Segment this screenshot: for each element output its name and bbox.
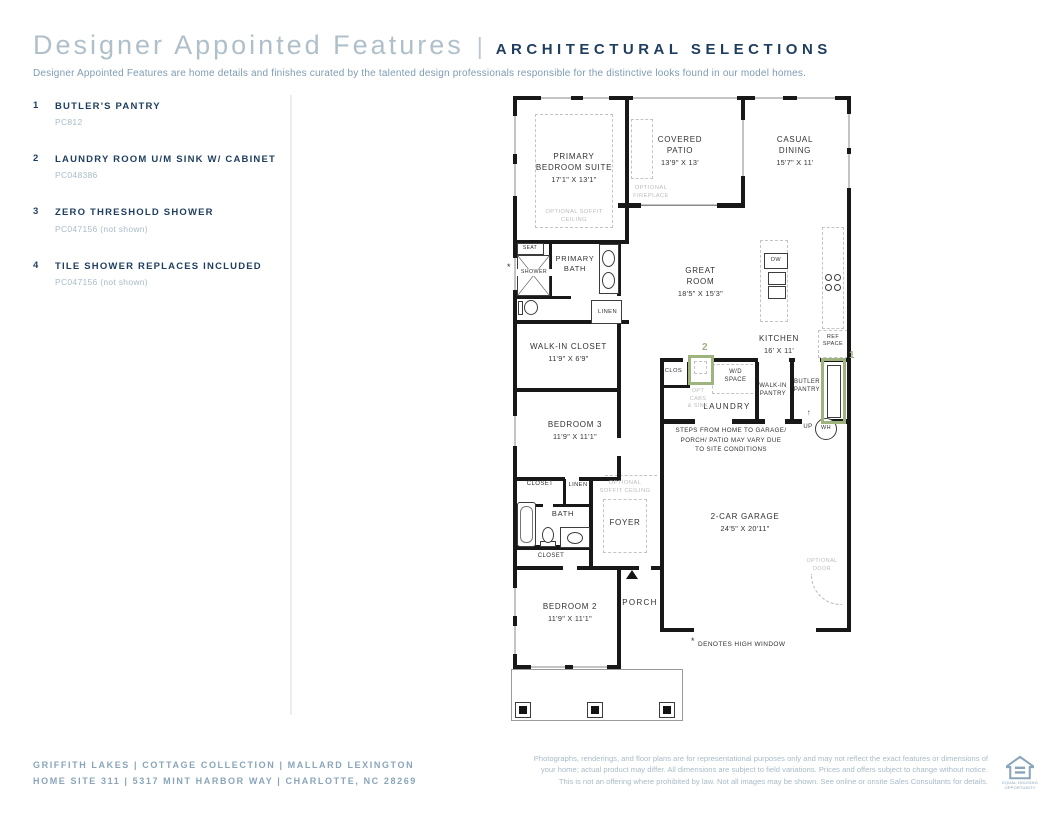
- linen-label: LINEN: [565, 482, 591, 490]
- window-marker: [633, 96, 737, 100]
- soffit-dashed-line: [605, 475, 657, 476]
- wall-segment: [660, 358, 664, 570]
- closet-label: CLOSET: [527, 553, 575, 561]
- wall-segment: [617, 456, 621, 479]
- equal-housing-house-icon: [1005, 755, 1035, 781]
- wall-segment: [577, 566, 621, 570]
- wall-segment: [660, 419, 695, 424]
- wall-segment: [553, 504, 591, 507]
- room-label-great-room: GREAT ROOM 18'5" X 15'3": [663, 266, 738, 298]
- room-label-walk-in-closet: WALK-IN CLOSET 11'9" X 6'9": [521, 342, 616, 363]
- room-label-butler-pantry: BUTLER PANTRY: [790, 379, 824, 395]
- optional-door-label: OPTIONAL DOOR: [799, 558, 845, 573]
- window-marker: [847, 114, 851, 148]
- wall-segment: [660, 628, 694, 632]
- feature-number: 3: [33, 205, 55, 233]
- seat-label: SEAT: [517, 245, 543, 252]
- kitchen-sink-basin: [768, 272, 786, 285]
- clos-label: CLOS: [661, 368, 686, 376]
- porch-post-core: [519, 706, 527, 714]
- feature-title: BUTLER'S PANTRY: [55, 99, 161, 114]
- porch-post-core: [591, 706, 599, 714]
- wall-segment: [732, 419, 765, 424]
- toilet-bowl: [542, 527, 554, 543]
- wall-segment: [513, 566, 563, 570]
- wall-segment: [711, 358, 758, 362]
- window-marker: [847, 154, 851, 188]
- footer-line-2: HOME SITE 311 | 5317 MINT HARBOR WAY | C…: [33, 773, 417, 789]
- vanity-sink: [602, 272, 615, 289]
- shower-label: SHOWER: [516, 269, 552, 276]
- window-marker: [513, 626, 517, 654]
- room-label-primary-bedroom: PRIMARY BEDROOM SUITE 17'1" X 13'1": [535, 152, 613, 184]
- page-title: Designer Appointed Features: [33, 30, 464, 61]
- feature-title: TILE SHOWER REPLACES INCLUDED: [55, 259, 262, 274]
- feature-code: PC047156 (not shown): [55, 277, 262, 287]
- list-item: 3 ZERO THRESHOLD SHOWER PC047156 (not sh…: [33, 205, 281, 233]
- feature-number: 1: [33, 99, 55, 127]
- room-label-walk-in-pantry: WALK-IN PANTRY: [754, 383, 792, 399]
- title-divider: |: [477, 33, 483, 60]
- room-label-porch: PORCH: [615, 598, 665, 609]
- bathtub-inner: [520, 506, 533, 543]
- list-item: 4 TILE SHOWER REPLACES INCLUDED PC047156…: [33, 259, 281, 287]
- window-marker: [513, 116, 517, 154]
- optional-soffit-label: OPTIONAL SOFFIT CEILING: [541, 208, 607, 224]
- wd-space-label: W/D SPACE: [713, 369, 758, 385]
- list-item: 2 LAUNDRY ROOM U/M SINK W/ CABINET PC048…: [33, 152, 281, 180]
- feature-code: PC812: [55, 117, 161, 127]
- room-label-kitchen: KITCHEN 16' X 11': [748, 334, 810, 355]
- window-marker: [641, 203, 717, 208]
- window-marker: [531, 665, 565, 669]
- closet-label: CLOSET: [517, 481, 563, 489]
- footer-line-1: GRIFFITH LAKES | COTTAGE COLLECTION | MA…: [33, 757, 417, 773]
- high-window-note: DENOTES HIGH WINDOW: [698, 641, 793, 649]
- kitchen-sink-basin: [768, 286, 786, 299]
- opt-cabs-sink-label: OPT CABS & SINK: [679, 388, 717, 411]
- window-marker: [573, 665, 607, 669]
- section-title: ARCHITECTURAL SELECTIONS: [496, 41, 832, 58]
- optional-fireplace-label: OPTIONAL FIREPLACE: [627, 184, 675, 200]
- feature-title: LAUNDRY ROOM U/M SINK W/ CABINET: [55, 152, 276, 167]
- optional-sink-outline: [694, 361, 707, 374]
- window-marker: [513, 416, 517, 446]
- room-label-bath: BATH: [543, 509, 583, 519]
- room-label-bedroom-2: BEDROOM 2 11'9" X 11'1": [525, 602, 615, 623]
- footer-disclaimer: Photographs, renderings, and floor plans…: [530, 753, 988, 787]
- feature-number: 4: [33, 259, 55, 287]
- cooktop-burner: [825, 274, 832, 281]
- room-label-covered-patio: COVERED PATIO 13'9" X 13': [641, 135, 719, 167]
- window-marker: [797, 96, 835, 100]
- window-marker: [513, 588, 517, 616]
- callout-number-1: 1: [849, 350, 855, 361]
- dishwasher-label: DW: [764, 257, 788, 264]
- page-header: Designer Appointed Features | ARCHITECTU…: [33, 30, 832, 79]
- window-marker: [741, 120, 745, 176]
- window-marker: [583, 96, 609, 100]
- list-item: 1 BUTLER'S PANTRY PC812: [33, 99, 281, 127]
- room-label-primary-bath: PRIMARY BATH: [553, 254, 597, 274]
- optional-door-arc: [811, 574, 842, 605]
- room-label-bedroom-3: BEDROOM 3 11'9" X 11'1": [530, 420, 620, 441]
- room-label-garage: 2-CAR GARAGE 24'5" X 20'11": [693, 512, 797, 533]
- toilet-bowl: [524, 300, 538, 315]
- room-label-foyer: FOYER: [603, 518, 647, 529]
- up-arrow-icon: ↑: [803, 408, 815, 418]
- wall-segment: [617, 568, 621, 669]
- cooktop-burner: [825, 284, 832, 291]
- high-window-star: *: [689, 636, 697, 648]
- optional-soffit-foyer-label: OPTIONAL SOFFIT CEILING: [591, 479, 659, 495]
- wall-segment: [617, 320, 621, 392]
- toilet-tank: [518, 301, 523, 315]
- window-marker: [513, 164, 517, 196]
- feature-number: 2: [33, 152, 55, 180]
- vertical-divider: [290, 95, 292, 715]
- equal-housing-logo: EQUAL HOUSING OPPORTUNITY: [1002, 755, 1038, 791]
- wall-segment: [660, 358, 683, 362]
- porch-post-core: [663, 706, 671, 714]
- window-marker: [755, 96, 783, 100]
- feature-list: 1 BUTLER'S PANTRY PC812 2 LAUNDRY ROOM U…: [33, 99, 281, 312]
- wall-segment: [625, 96, 629, 244]
- wall-segment: [513, 388, 621, 392]
- wh-label: WH: [815, 425, 837, 432]
- page-description: Designer Appointed Features are home det…: [33, 68, 832, 79]
- ref-space-label: REF SPACE: [818, 334, 848, 348]
- butler-pantry-cabinet: [827, 365, 841, 418]
- floor-plan: 2 1 PRIMARY BEDROOM SUITE 17'1" X 13'1" …: [505, 88, 865, 738]
- vanity-sink: [602, 250, 615, 267]
- entry-door-marker: [626, 570, 638, 579]
- bath-sink: [567, 532, 583, 544]
- high-window-star: *: [505, 262, 513, 274]
- feature-code: PC047156 (not shown): [55, 224, 214, 234]
- footer-project-info: GRIFFITH LAKES | COTTAGE COLLECTION | MA…: [33, 757, 417, 789]
- window-marker: [541, 96, 571, 100]
- wall-segment: [816, 628, 851, 632]
- cooktop-burner: [834, 284, 841, 291]
- steps-note: STEPS FROM HOME TO GARAGE/ PORCH/ PATIO …: [667, 426, 795, 455]
- feature-code: PC048386: [55, 170, 276, 180]
- room-label-casual-dining: CASUAL DINING 15'7" X 11': [758, 135, 832, 167]
- cooktop-burner: [834, 274, 841, 281]
- callout-number-2: 2: [702, 342, 708, 353]
- feature-title: ZERO THRESHOLD SHOWER: [55, 205, 214, 220]
- linen-label: LINEN: [594, 309, 621, 317]
- equal-housing-text: EQUAL HOUSING OPPORTUNITY: [1002, 781, 1038, 791]
